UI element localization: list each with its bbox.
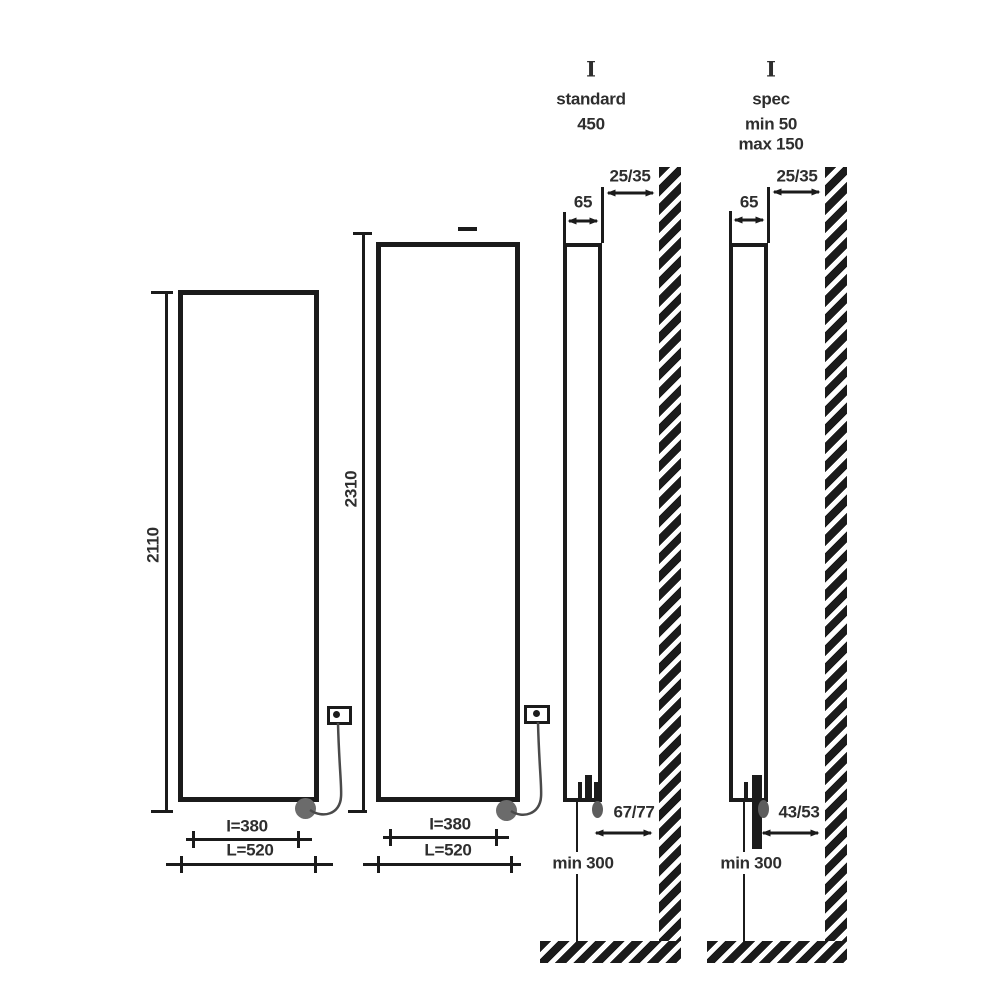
floor-clearance-label: min 300	[552, 855, 613, 872]
variant-label: spec	[752, 91, 790, 108]
floor-hatch	[540, 941, 681, 963]
height-dimension-line	[362, 233, 365, 813]
radiator-body-outline	[376, 242, 520, 802]
wall-gap-label: 25/35	[609, 168, 650, 185]
variant-value-label: 450	[577, 116, 604, 133]
inner-width-tick-right	[495, 829, 498, 846]
wall-hatch	[825, 167, 847, 963]
wall-gap-extension-line	[767, 187, 770, 243]
inner-width-label: I=380	[226, 818, 268, 835]
radiator-profile-outline	[563, 243, 602, 802]
floor-hatch	[707, 941, 847, 963]
height-dimension-tick-top	[353, 232, 372, 235]
depth-extension-line	[729, 211, 732, 243]
variant-value-min-label: min 50	[745, 116, 797, 133]
inner-width-label: I=380	[429, 816, 471, 833]
outlet-connector	[758, 800, 769, 818]
variant-value-max-label: max 150	[738, 136, 803, 153]
outer-width-dimension-line	[363, 863, 521, 866]
valve-stem	[585, 775, 592, 802]
radiator-body-outline	[178, 290, 319, 802]
radiator-profile-outline	[729, 243, 768, 802]
height-dimension-tick-bottom	[348, 810, 367, 813]
outlet-offset-label: 43/53	[778, 804, 819, 821]
outer-width-dimension-line	[166, 863, 333, 866]
wall-hatch	[659, 167, 681, 963]
outer-width-label: L=520	[424, 842, 471, 859]
inner-width-tick-left	[192, 831, 195, 848]
depth-extension-line	[563, 212, 566, 243]
height-dimension-label: 2110	[145, 527, 162, 563]
depth-label: 65	[574, 194, 592, 211]
valve-prong-right	[594, 782, 598, 802]
wall-gap-label: 25/35	[776, 168, 817, 185]
outer-width-tick-right	[314, 856, 317, 873]
radiator-dimension-diagram: 2110 I=380 L=520 2310 I=380 L=520	[0, 0, 1000, 1000]
height-dimension-label: 2310	[343, 471, 360, 508]
heating-element-connector	[496, 800, 517, 821]
valve-prong-left	[578, 782, 582, 802]
height-dimension-line	[165, 292, 168, 813]
outer-width-label: L=520	[226, 842, 273, 859]
floor-clearance-label: min 300	[720, 855, 781, 872]
vent-mark	[458, 227, 477, 231]
variant-label: standard	[556, 91, 625, 108]
type-mark-label: I	[586, 57, 596, 82]
outlet-connector	[592, 801, 603, 818]
heating-element-connector	[295, 798, 316, 819]
outlet-offset-label: 67/77	[613, 804, 654, 821]
valve-prong-left	[744, 782, 748, 802]
inner-width-dimension-line	[383, 836, 509, 839]
wall-socket-pin	[333, 711, 340, 718]
wall-socket-pin	[533, 710, 540, 717]
inner-width-tick-left	[389, 829, 392, 846]
floor-clearance-line-upper	[576, 802, 578, 852]
outer-width-tick-right	[510, 856, 513, 873]
outer-width-tick-left	[180, 856, 183, 873]
floor-clearance-line-lower	[576, 874, 578, 942]
inner-width-tick-right	[297, 831, 300, 848]
outer-width-tick-left	[377, 856, 380, 873]
floor-clearance-line-lower	[743, 874, 745, 942]
wall-gap-extension-line	[601, 187, 604, 243]
depth-label: 65	[740, 194, 758, 211]
height-dimension-tick-top	[151, 291, 173, 294]
floor-clearance-line-upper	[743, 802, 745, 852]
height-dimension-tick-bottom	[151, 810, 173, 813]
type-mark-label: I	[766, 57, 776, 82]
